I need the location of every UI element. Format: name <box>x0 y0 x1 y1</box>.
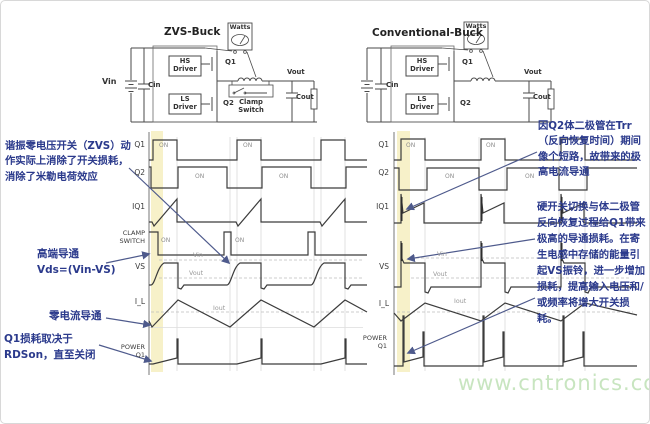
watermark: www.cntronics.com <box>458 371 650 395</box>
left-hs-driver-label: HS Driver <box>169 57 201 74</box>
zvs-power-trace <box>149 339 367 364</box>
right-ls-driver-label: LS Driver <box>406 95 438 112</box>
left-vin-level-label: Vin <box>193 252 203 259</box>
vin-label: Vin <box>102 77 117 86</box>
on-label: ON <box>243 142 252 149</box>
right-iout-level-label: Iout <box>454 298 466 305</box>
left-q1-label: Q1 <box>225 58 236 66</box>
right-watts-meter-label: Watts <box>464 23 488 30</box>
left-row-il: I_L <box>115 297 145 306</box>
left-watts-meter-label: Watts <box>228 24 252 31</box>
right-vout-level-label: Vout <box>433 271 447 278</box>
right-vout-label: Vout <box>524 68 542 76</box>
trr-note: 因Q2体二极管在Trr（反向恢复时间）期间像个短路，故带来的极高电流导通 <box>538 119 646 181</box>
hard-switching-note: 硬开关切换与体二极管反向恢复过程给Q1带来极高的导通损耗。在寄生电感中存储的能量… <box>537 200 647 328</box>
diagram-page: ZVS-Buck Conventional-Buck Watts Watts V… <box>0 0 650 424</box>
zvs-note: 谐振零电压开关（ZVS）动作实际上消除了开关损耗，消除了米勒电荷效应 <box>5 139 133 185</box>
high-side-note: 高端导通 Vds=(Vin-VS) <box>37 247 141 279</box>
on-label: ON <box>445 173 454 180</box>
on-label: ON <box>195 173 204 180</box>
right-row-q2: Q2 <box>363 168 389 177</box>
on-label: ON <box>406 142 415 149</box>
zvs-iq1-trace <box>149 199 367 226</box>
left-iout-level-label: Iout <box>213 305 225 312</box>
on-label: ON <box>161 237 170 244</box>
left-row-clamp-switch: CLAMP SWITCH <box>107 229 145 245</box>
hard-switching-vs-arrow <box>408 239 535 259</box>
left-ls-driver-label: LS Driver <box>169 95 201 112</box>
left-cout-label: Cout <box>296 93 314 101</box>
on-label: ON <box>525 173 534 180</box>
zvs-il-trace <box>149 300 367 327</box>
right-cout-label: Cout <box>533 93 551 101</box>
zvs-note-arrow <box>129 168 229 263</box>
right-q1-label: Q1 <box>462 58 473 66</box>
on-label: ON <box>486 142 495 149</box>
hard-switching-power-arrow <box>408 298 535 353</box>
right-q2-label: Q2 <box>460 99 471 107</box>
on-label: ON <box>235 237 244 244</box>
clamp-switch-label: Clamp Switch <box>229 98 273 115</box>
q1-loss-note: Q1损耗取决于RDSon，直至关闭 <box>4 332 122 364</box>
zero-current-note: 零电流导通 <box>49 309 102 325</box>
zvs-highlight-band <box>151 131 163 372</box>
right-hs-driver-label: HS Driver <box>406 57 438 74</box>
left-vout-label: Vout <box>287 68 305 76</box>
zvs-q1-trace <box>149 140 367 160</box>
right-row-iq1: IQ1 <box>359 202 389 211</box>
right-row-q1: Q1 <box>363 140 389 149</box>
left-circuit-title: ZVS-Buck <box>164 26 220 38</box>
right-row-power-q1: POWER Q1 <box>349 334 387 350</box>
right-row-il: I_L <box>359 299 389 308</box>
zvs-vs-trace <box>149 263 367 289</box>
left-cin-label: Cin <box>148 81 161 89</box>
right-row-vs: VS <box>363 262 389 271</box>
zvs-waveform-panel <box>149 131 367 375</box>
right-vin-level-label: Vin <box>437 251 447 258</box>
zvs-clamp-trace <box>149 232 367 255</box>
zero-current-note-arrow <box>106 318 150 325</box>
on-label: ON <box>279 173 288 180</box>
on-label: ON <box>159 142 168 149</box>
zvs-q2-trace <box>149 167 367 188</box>
right-cin-label: Cin <box>386 81 399 89</box>
left-row-iq1: IQ1 <box>115 202 145 211</box>
left-vout-level-label: Vout <box>189 270 203 277</box>
